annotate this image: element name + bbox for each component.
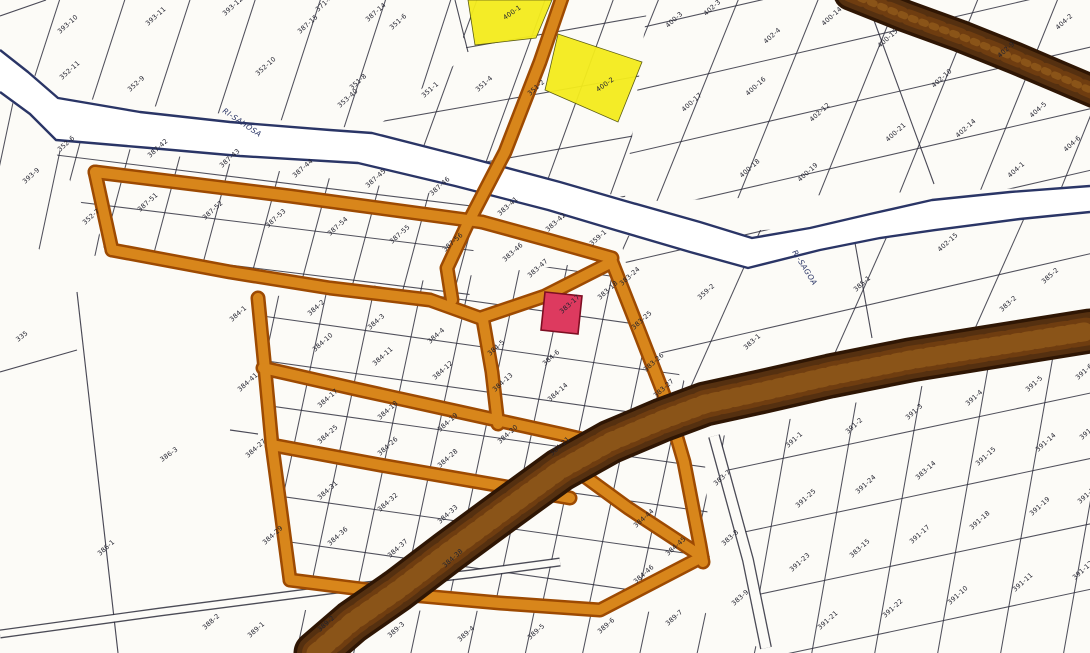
parcel-label: 384-17 (316, 387, 340, 409)
parcel-label: 352-9 (126, 74, 146, 93)
parcel-label: 391-23 (788, 551, 812, 573)
parcel-label: 387-14 (364, 1, 388, 23)
parcel-label: 402-12 (808, 101, 832, 123)
brown-road (316, 331, 1090, 653)
parcel-label: 384-10 (311, 331, 335, 353)
parcel-label: 391-17 (908, 523, 932, 545)
parcel-line (0, 531, 1027, 653)
parcel-label: 400-18 (738, 157, 762, 179)
parcel-label: 402-3 (702, 0, 722, 17)
parcel-line (813, 0, 1046, 573)
parcel-label: 384-36 (326, 525, 350, 547)
parcel-line (725, 0, 963, 653)
parcel-label: 389-5 (526, 622, 546, 641)
parcel-line (98, 0, 336, 653)
street (112, 250, 612, 318)
parcel-label: 391-3 (904, 402, 924, 421)
parcel-label: 386-1 (96, 538, 116, 557)
parcel-label: 391-12 (1071, 559, 1090, 581)
parcel-label: 400-3 (664, 10, 684, 29)
cadastral-map-canvas: RI-SAHOSARI-SAGOA 393-10393-11393-12387-… (0, 0, 1090, 653)
brown-road (316, 331, 1090, 653)
parcel-label: 391-20 (1076, 483, 1090, 505)
parcel-line (598, 0, 979, 544)
parcel-label: 391-21 (816, 609, 840, 631)
parcel-label: 384-1 (228, 304, 248, 323)
parcel-line (50, 0, 288, 653)
parcel-boundary (0, 0, 46, 16)
parcel-label: 389-1 (246, 620, 266, 639)
parcel-label: 400-17 (680, 91, 704, 113)
map-svg: RI-SAHOSARI-SAGOA 393-10393-11393-12387-… (0, 0, 1090, 653)
parcel-label: 391-5 (1024, 374, 1044, 393)
parcel-label: 383-1 (742, 332, 762, 351)
parcel-label: 393-12 (221, 0, 245, 17)
parcel-label: 371-4 (314, 0, 334, 13)
parcel-label: 391-2 (844, 416, 864, 435)
parcel-line (693, 0, 926, 529)
parcel-line (176, 14, 261, 415)
parcel-line (0, 618, 1015, 653)
parcel-label: 384-32 (376, 491, 400, 513)
parcel-line (66, 0, 151, 391)
parcel-zone (0, 0, 370, 438)
parcel-label: 383-15 (848, 537, 872, 559)
parcel-line (680, 0, 918, 653)
parcel-label: 387-45 (364, 167, 388, 189)
parcel-label: 384-28 (436, 447, 460, 469)
parcel-label: 352-10 (254, 55, 278, 77)
parcel-label: 389-4 (456, 624, 476, 643)
parcel-label: 384-25 (316, 423, 340, 445)
parcel-label: 383-2 (998, 294, 1018, 313)
parcel-label: 387-15 (296, 13, 320, 35)
parcel-label: 383-42 (544, 211, 568, 233)
parcel-label: 384-11 (371, 345, 395, 367)
parcel-label: 402-15 (936, 231, 960, 253)
parcel-label: 385-2 (1040, 266, 1060, 285)
parcel-label: 384-4 (426, 326, 446, 345)
parcel-label: 384-41 (236, 371, 260, 393)
parcel-label: 391-1 (784, 430, 804, 449)
parcel-line (466, 585, 1090, 653)
parcel-line (695, 0, 864, 653)
parcel-boundary (77, 292, 118, 653)
parcel-label: 391-15 (974, 445, 998, 467)
parcel-line (49, 0, 287, 644)
parcel-label: 400-14 (820, 5, 844, 27)
parcel-label: 400-15 (876, 27, 900, 49)
parcel-line (677, 0, 915, 653)
parcel-label: 391-24 (854, 473, 878, 495)
parcel-line (25, 0, 325, 508)
parcel-label: 351-4 (474, 74, 494, 93)
parcel-label: 402-4 (762, 26, 782, 45)
parcel-label: 400-21 (884, 121, 908, 143)
parcel-boundary (0, 350, 77, 372)
parcel-label: 384-14 (546, 381, 570, 403)
parcel-label: 393-9 (21, 166, 41, 185)
parcel-label: 389-6 (596, 616, 616, 635)
parcel-label: 389-7 (664, 608, 684, 627)
parcel-label: 383-14 (914, 459, 938, 481)
parcel-label: 391-13 (1078, 419, 1090, 441)
parcel-label: 402-10 (930, 67, 954, 89)
parcel-line (333, 0, 1090, 161)
yellow-highlighted-parcel (545, 34, 642, 122)
parcel-label: 385-1 (852, 274, 872, 293)
parcel-label: 353-40 (336, 87, 360, 109)
parcel-line (194, 0, 432, 653)
parcel-label: 404-2 (1054, 12, 1074, 31)
parcel-label: 404-1 (1006, 160, 1026, 179)
brown-road (316, 331, 1090, 653)
parcel-label: 404-5 (1028, 100, 1048, 119)
parcel-label: 383-47 (526, 257, 550, 279)
parcel-line (453, 523, 1090, 653)
parcel-label: 400-16 (744, 75, 768, 97)
parcel-line (484, 513, 1090, 653)
parcel-line (0, 63, 136, 653)
parcel-label: 391-18 (968, 509, 992, 531)
parcel-label: 384-26 (376, 435, 400, 457)
parcel-label: 402-14 (954, 117, 978, 139)
parcel-label: 352-11 (58, 59, 82, 81)
parcel-label: 383-9 (730, 588, 750, 607)
parcel-label: 393-11 (144, 5, 168, 27)
parcel-label: 384-31 (316, 479, 340, 501)
parcel-label: 384-27 (244, 437, 268, 459)
parcel-label: 351-6 (388, 12, 408, 31)
parcel-label: 388-2 (201, 612, 221, 631)
parcel-boundary (230, 430, 258, 434)
parcel-label: 359-2 (696, 282, 716, 301)
parcel-line (11, 0, 96, 379)
parcel-label: 391-25 (794, 487, 818, 509)
brown-road (316, 331, 1090, 653)
parcel-label: 335 (14, 329, 29, 343)
parcel-label: 351-1 (420, 80, 440, 99)
parcel-label: 393-10 (56, 13, 80, 35)
parcel-line (121, 2, 206, 403)
parcel-line (84, 0, 384, 527)
parcel-boundary (455, 0, 468, 52)
parcel-label: 351-8 (348, 72, 368, 91)
parcel-label: 386-3 (158, 445, 179, 463)
parcel-label: 383-46 (501, 241, 525, 263)
yellow-highlighted-parcel (468, 0, 552, 45)
parcel-label: 359-1 (588, 228, 608, 247)
parcel-line (95, 0, 333, 653)
parcel-label: 391-6 (1074, 362, 1090, 381)
parcel-line (479, 648, 1090, 653)
parcel-label: 391-19 (1028, 495, 1052, 517)
